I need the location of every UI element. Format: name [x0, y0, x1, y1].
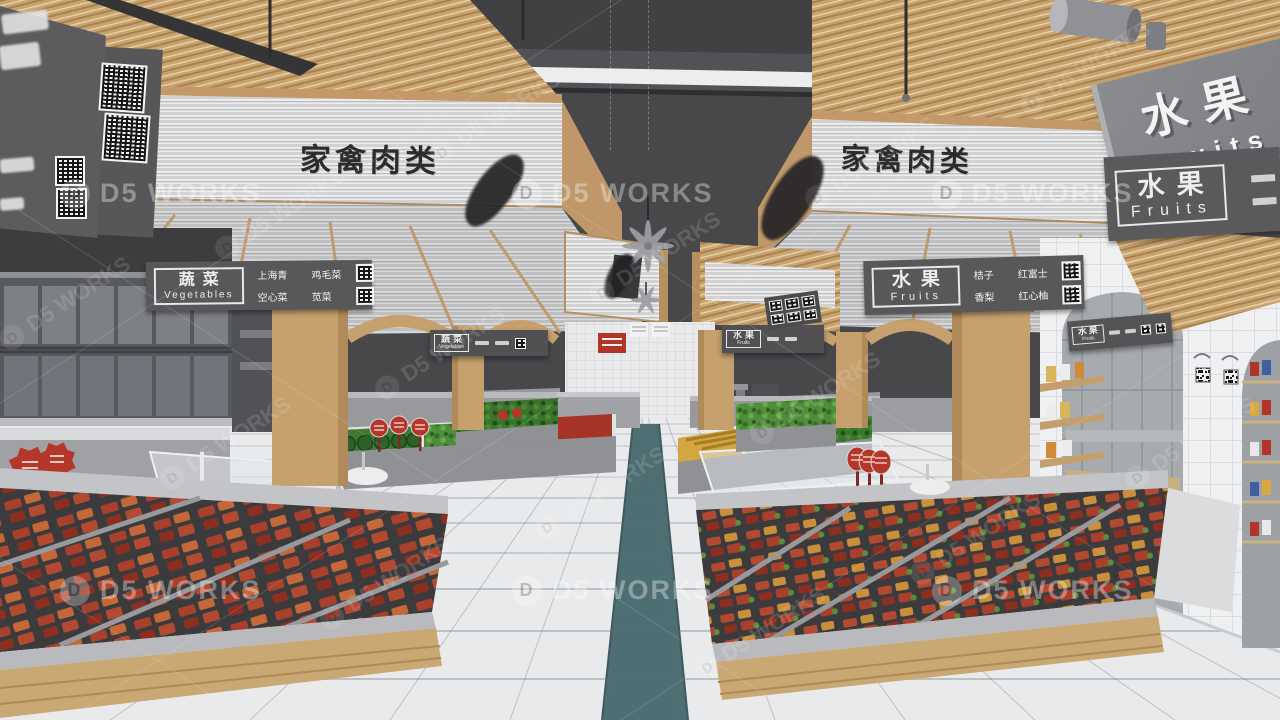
qr-code-icon [769, 299, 784, 311]
vegetable-item: 空心菜 [258, 289, 288, 304]
fruits-far-sign: 水果 Fruits [722, 325, 824, 353]
qr-code-icon [356, 287, 374, 305]
fruits-hanging-sign: 水果 Fruits 桔子 红富士 香梨 红心柚 [863, 255, 1084, 315]
vegetables-far-sign: 蔬菜 Vegetables [430, 330, 548, 356]
poultry-meat-beam-sign-left: 家禽肉类 [295, 135, 446, 179]
fruit-item: 桔子 [973, 266, 993, 282]
qr-code-icon [770, 313, 785, 325]
qr-code-icon [355, 264, 373, 282]
qr-code-icon [1061, 261, 1081, 281]
scene-geometry [0, 0, 1280, 720]
qr-code-icon [803, 308, 818, 320]
fruit-item: 红心柚 [1018, 286, 1048, 302]
small-text-block [1251, 174, 1275, 182]
vegetables-hanging-sign: 蔬菜 Vegetables 上海青 鸡毛菜 空心菜 苋菜 [146, 260, 373, 311]
qr-info-panel [0, 0, 170, 240]
qr-code-icon [1062, 285, 1082, 305]
market-3d-render: 家禽肉类 家禽肉类 水果 Fruits 水果 Fruits 蔬菜 Vegetab… [0, 0, 1280, 720]
qr-code-icon [785, 297, 800, 309]
vegetable-item: 苋菜 [312, 288, 342, 303]
qr-code-icon [1140, 324, 1151, 335]
small-text-block [1252, 197, 1276, 205]
fruit-item: 红富士 [1017, 264, 1047, 280]
qr-code-icon [515, 338, 526, 349]
qr-code-icon [56, 188, 87, 219]
fruits-board-frame: 水果 Fruits [1114, 164, 1227, 226]
vegetable-item: 鸡毛菜 [311, 266, 341, 281]
calligraphy-text-block [0, 197, 24, 211]
qr-code-icon [101, 112, 150, 163]
fruits-board-sign: 水果 Fruits [1104, 147, 1280, 242]
vegetables-item-list: 上海青 鸡毛菜 空心菜 苋菜 [257, 266, 341, 304]
calligraphy-text-block [0, 42, 41, 71]
qr-code-icon [787, 311, 802, 323]
fruits-item-list: 桔子 红富士 香梨 红心柚 [973, 264, 1048, 303]
qr-code-icon [55, 156, 85, 186]
vegetable-item: 上海青 [257, 267, 287, 282]
fruits-sign-title: 水果 Fruits [871, 265, 960, 308]
fruit-item: 香梨 [974, 288, 994, 304]
poultry-meat-beam-sign-right: 家禽肉类 [821, 134, 992, 183]
qr-code-icon [1155, 323, 1166, 334]
qr-code-icon [801, 295, 816, 307]
qr-code-icon [98, 62, 147, 113]
calligraphy-text-block [0, 157, 35, 174]
vegetables-sign-title: 蔬菜 Vegetables [154, 267, 244, 305]
